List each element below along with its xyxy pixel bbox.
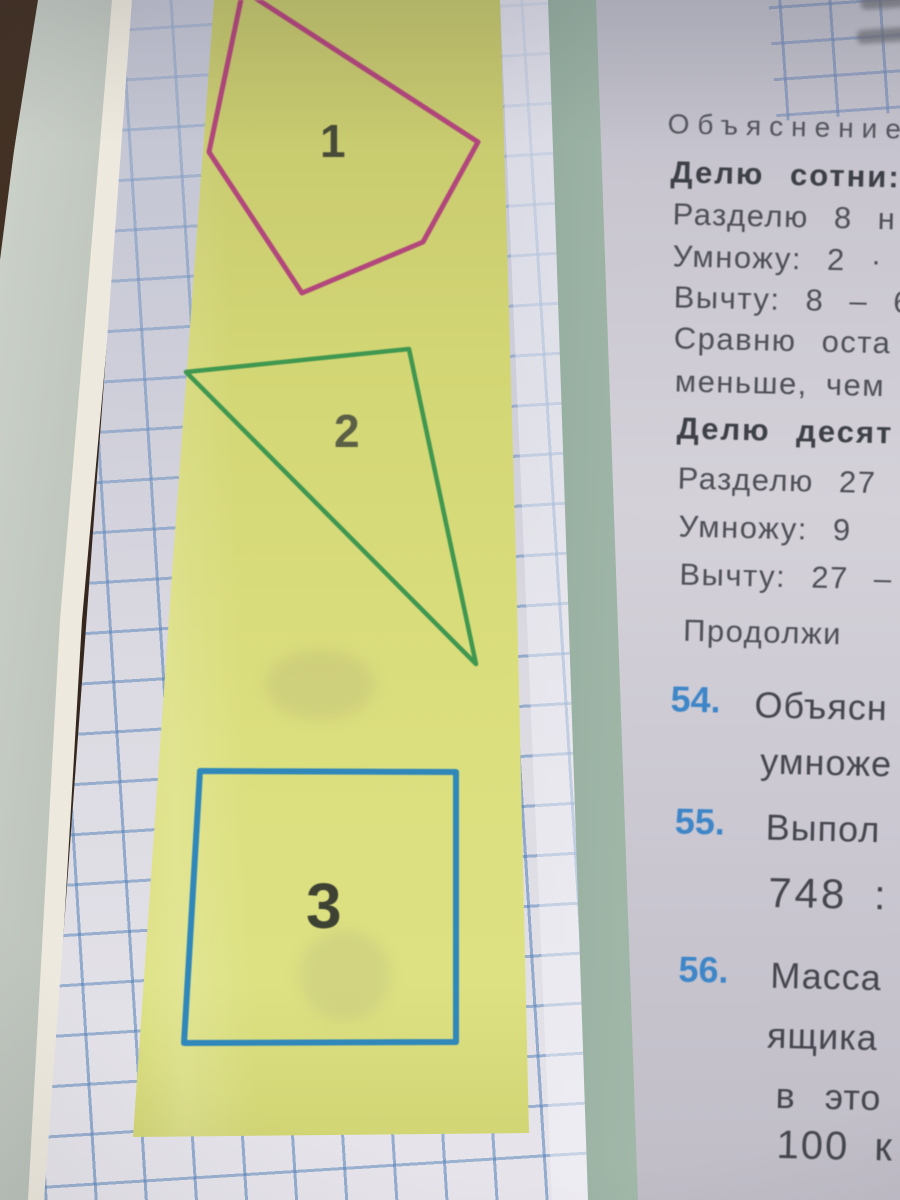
task-54-text: умноже [760, 740, 893, 785]
text-line: Разделю 8 н [672, 196, 897, 237]
text-line: Вычту: 27 – [679, 557, 893, 598]
textbook-photo: 1 2 3 Объяснение Делю сотни: Разделю 8 н… [0, 0, 900, 1200]
triangle-shape [186, 349, 476, 664]
text-line: Разделю 27 [677, 460, 877, 501]
text-line: Делю десят [676, 410, 893, 451]
task-56-text: ящика [767, 1015, 879, 1060]
text-line: Вычту: 8 – 6 [673, 279, 900, 320]
explanation-heading: Объяснение [667, 108, 900, 145]
task-number-56: 56. [678, 949, 729, 992]
task-55-expression: 748 : 2 [768, 869, 900, 921]
text-line: меньше, чем [674, 363, 885, 404]
text-line: Умножу: 9 [678, 509, 852, 549]
task-55-text: Выпол [765, 807, 881, 852]
text-line: Сравню оста [673, 320, 891, 361]
text-line: Умножу: 2 · 3 [672, 238, 900, 280]
shape-label-3: 3 [306, 870, 342, 942]
task-54-text: Объясн [754, 684, 888, 729]
task-56-text: в это [775, 1075, 882, 1119]
text-line: Делю сотни: [670, 154, 900, 195]
task-number-54: 54. [670, 678, 721, 721]
task-56-text: 100 к [776, 1123, 894, 1171]
task-56-text: Масса [770, 955, 882, 1000]
shape-label-1: 1 [320, 115, 346, 167]
task-number-55: 55. [674, 801, 725, 844]
text-line: Продолжи [683, 613, 843, 653]
shape-label-2: 2 [334, 405, 360, 457]
